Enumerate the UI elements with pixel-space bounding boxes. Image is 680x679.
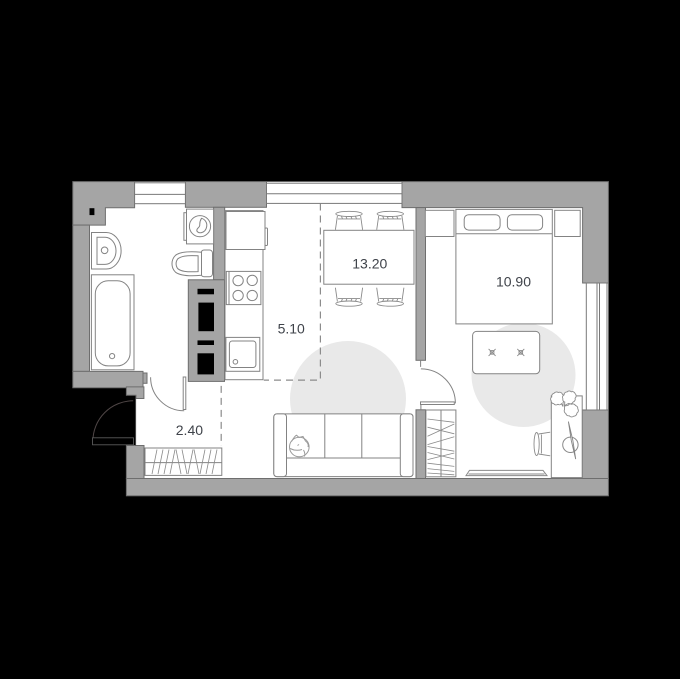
svg-text:2.40: 2.40 [176, 422, 203, 438]
svg-text:13.20: 13.20 [352, 255, 387, 271]
svg-text:10.90: 10.90 [496, 274, 531, 290]
svg-text:5.10: 5.10 [278, 321, 305, 337]
